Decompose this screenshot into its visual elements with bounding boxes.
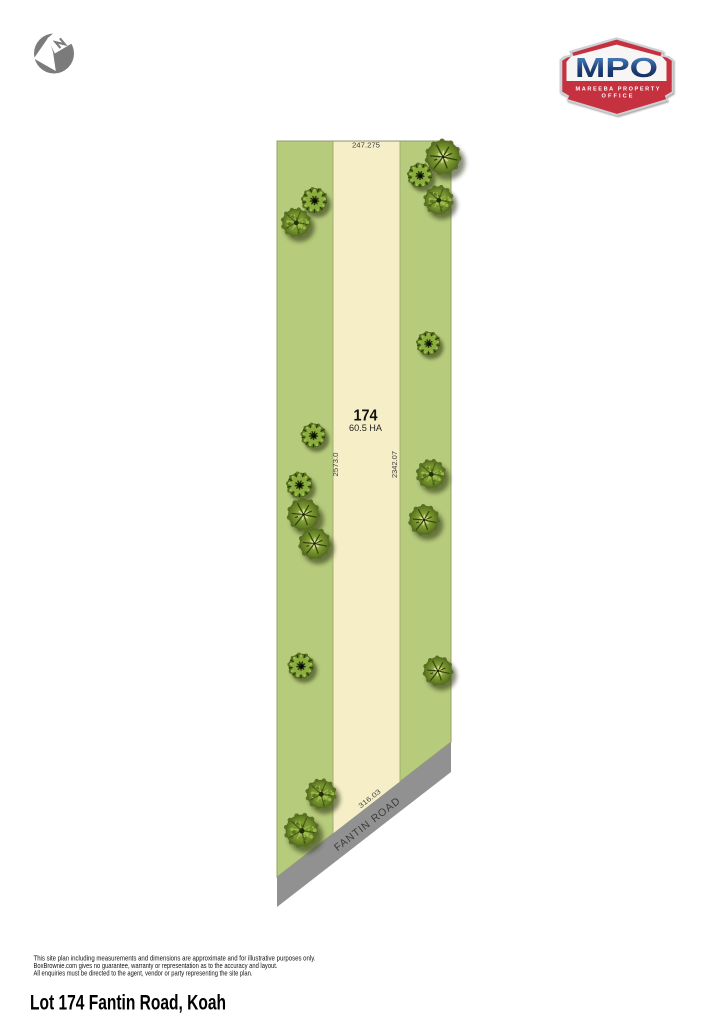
svg-text:247.275: 247.275 [352, 143, 380, 150]
svg-text:2573.0: 2573.0 [331, 453, 340, 477]
svg-text:2342.07: 2342.07 [390, 451, 399, 478]
svg-text:174: 174 [354, 408, 378, 425]
svg-text:60.5 HA: 60.5 HA [349, 423, 382, 433]
svg-text:MAREEBA PROPERTY: MAREEBA PROPERTY [576, 87, 660, 93]
svg-text:Lot 174 Fantin Road, Koah: Lot 174 Fantin Road, Koah [30, 992, 226, 1015]
svg-text:MPO: MPO [575, 52, 658, 83]
svg-text:All enquiries must be directed: All enquiries must be directed to the ag… [34, 969, 253, 978]
